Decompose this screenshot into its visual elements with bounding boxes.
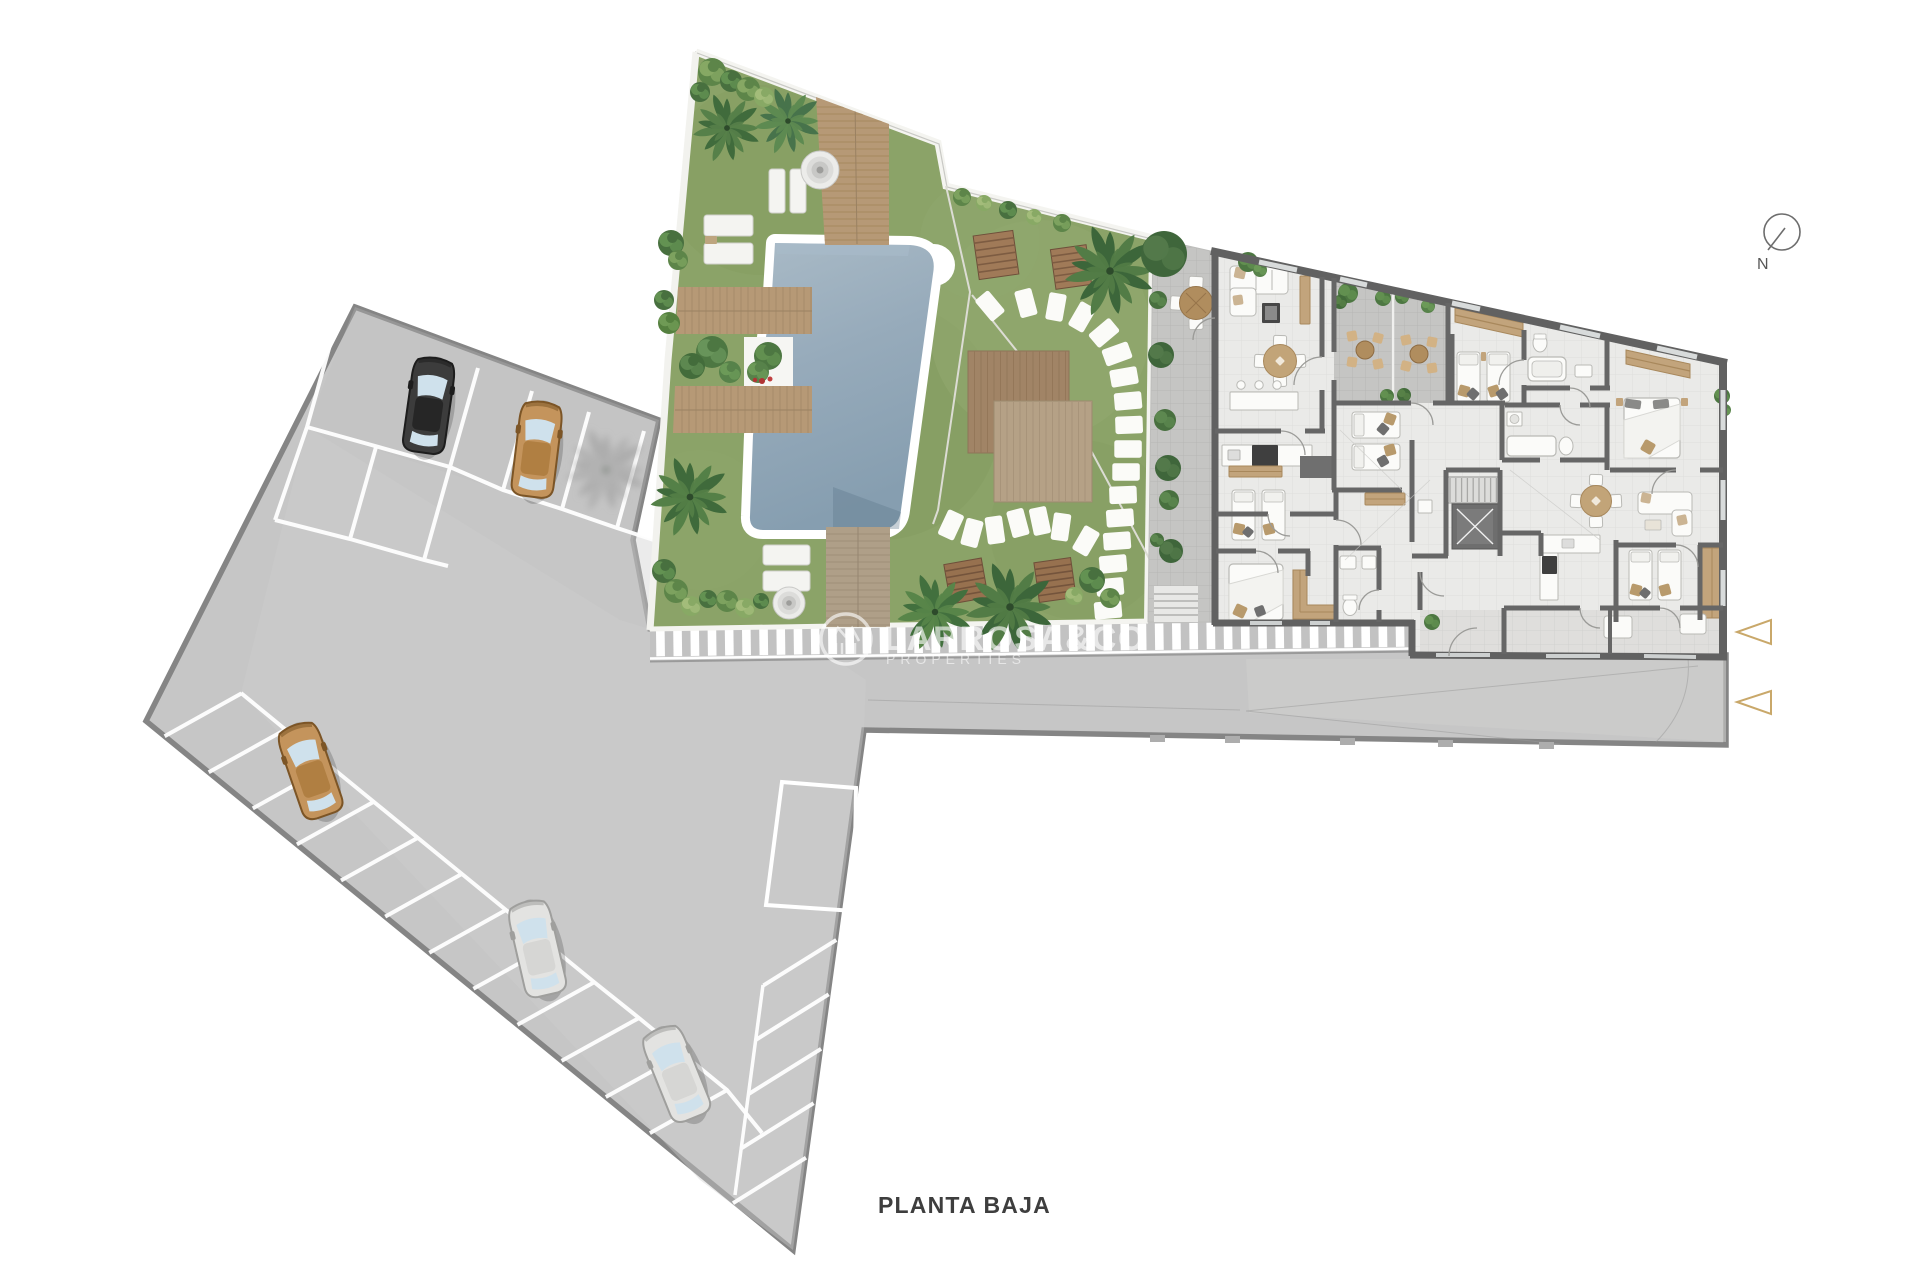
svg-text:PLANTA BAJA: PLANTA BAJA [878,1192,1051,1218]
svg-text:PROPERTIES: PROPERTIES [886,651,1026,667]
svg-text:N: N [1757,256,1769,273]
